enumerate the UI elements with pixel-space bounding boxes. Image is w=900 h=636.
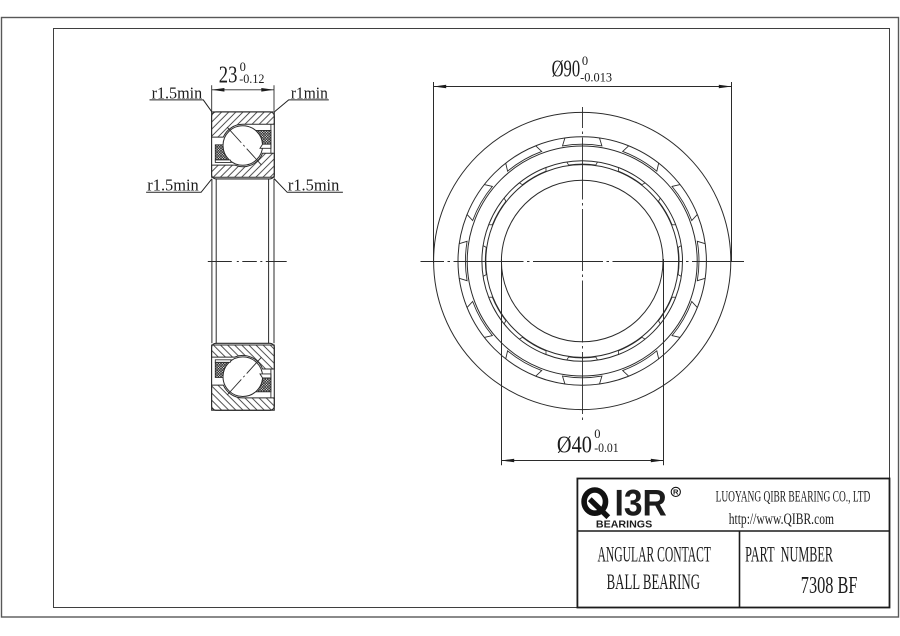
svg-text:23: 23 — [219, 62, 238, 88]
svg-text:Ø40: Ø40 — [557, 433, 592, 459]
svg-text:ANGULAR CONTACT: ANGULAR CONTACT — [598, 542, 712, 567]
svg-text:BEARINGS: BEARINGS — [596, 520, 653, 531]
svg-text:http://www.QIBR.com: http://www.QIBR.com — [729, 511, 834, 528]
svg-text:R: R — [673, 488, 679, 497]
svg-text:I3R: I3R — [615, 482, 667, 523]
svg-text:PART NUMBER: PART NUMBER — [745, 542, 833, 567]
svg-text:-0.12: -0.12 — [239, 72, 264, 86]
svg-text:7308 BF: 7308 BF — [801, 573, 858, 599]
svg-text:-0.013: -0.013 — [580, 70, 612, 84]
svg-text:0: 0 — [594, 427, 600, 441]
svg-text:0: 0 — [582, 54, 588, 68]
svg-text:-0.01: -0.01 — [594, 441, 619, 455]
svg-text:Ø90: Ø90 — [552, 57, 581, 83]
svg-text:LUOYANG QIBR BEARING CO., LTD: LUOYANG QIBR BEARING CO., LTD — [716, 489, 871, 506]
svg-text:BALL BEARING: BALL BEARING — [607, 569, 700, 594]
